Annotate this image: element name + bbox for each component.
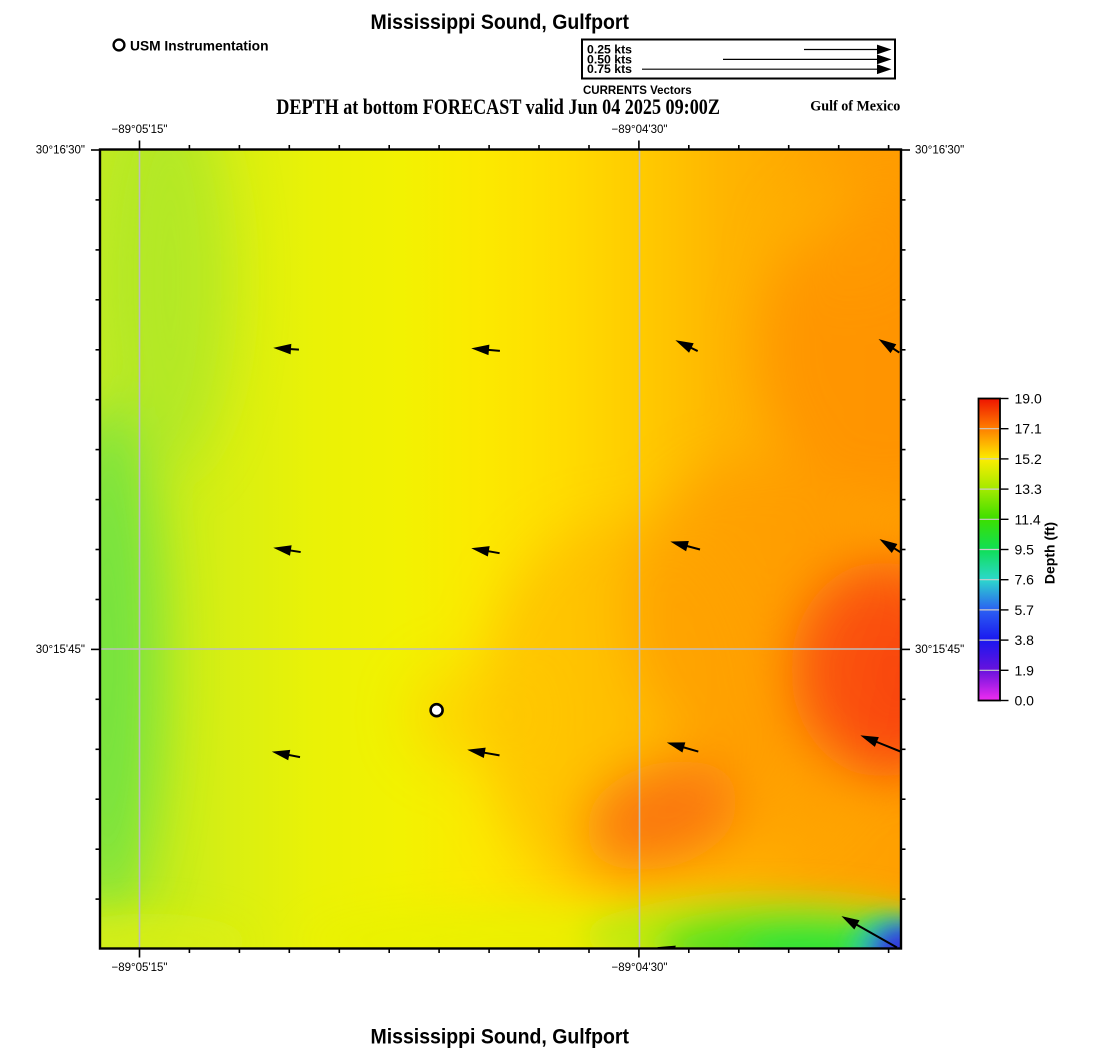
svg-text:USM Instrumentation: USM Instrumentation xyxy=(130,38,269,54)
svg-text:5.7: 5.7 xyxy=(1015,602,1035,618)
svg-text:11.4: 11.4 xyxy=(1015,511,1041,527)
svg-text:−89°05'15": −89°05'15" xyxy=(112,962,168,974)
svg-text:7.6: 7.6 xyxy=(1015,572,1035,588)
svg-text:Depth (ft): Depth (ft) xyxy=(1042,522,1058,584)
svg-text:9.5: 9.5 xyxy=(1015,542,1035,558)
svg-text:19.0: 19.0 xyxy=(1015,391,1042,407)
svg-text:13.3: 13.3 xyxy=(1015,481,1042,497)
svg-text:0.0: 0.0 xyxy=(1015,693,1035,709)
svg-text:−89°04'30": −89°04'30" xyxy=(612,962,668,974)
svg-text:17.1: 17.1 xyxy=(1015,421,1042,437)
svg-text:3.8: 3.8 xyxy=(1015,632,1035,648)
svg-text:0.75 kts: 0.75 kts xyxy=(587,64,632,76)
svg-text:−89°05'15": −89°05'15" xyxy=(112,124,168,136)
svg-text:Mississippi Sound, Gulfport: Mississippi Sound, Gulfport xyxy=(371,1026,630,1049)
svg-text:30°16'30": 30°16'30" xyxy=(915,145,964,157)
svg-text:15.2: 15.2 xyxy=(1015,451,1042,467)
svg-text:30°16'30": 30°16'30" xyxy=(36,145,85,157)
svg-text:30°15'45": 30°15'45" xyxy=(915,644,964,656)
svg-text:Gulf of Mexico: Gulf of Mexico xyxy=(810,99,900,115)
svg-text:−89°04'30": −89°04'30" xyxy=(612,124,668,136)
svg-text:Mississippi Sound, Gulfport: Mississippi Sound, Gulfport xyxy=(371,11,630,34)
svg-text:DEPTH at bottom FORECAST valid: DEPTH at bottom FORECAST valid Jun 04 20… xyxy=(276,94,720,119)
svg-text:1.9: 1.9 xyxy=(1015,662,1035,678)
svg-text:30°15'45": 30°15'45" xyxy=(36,644,85,656)
